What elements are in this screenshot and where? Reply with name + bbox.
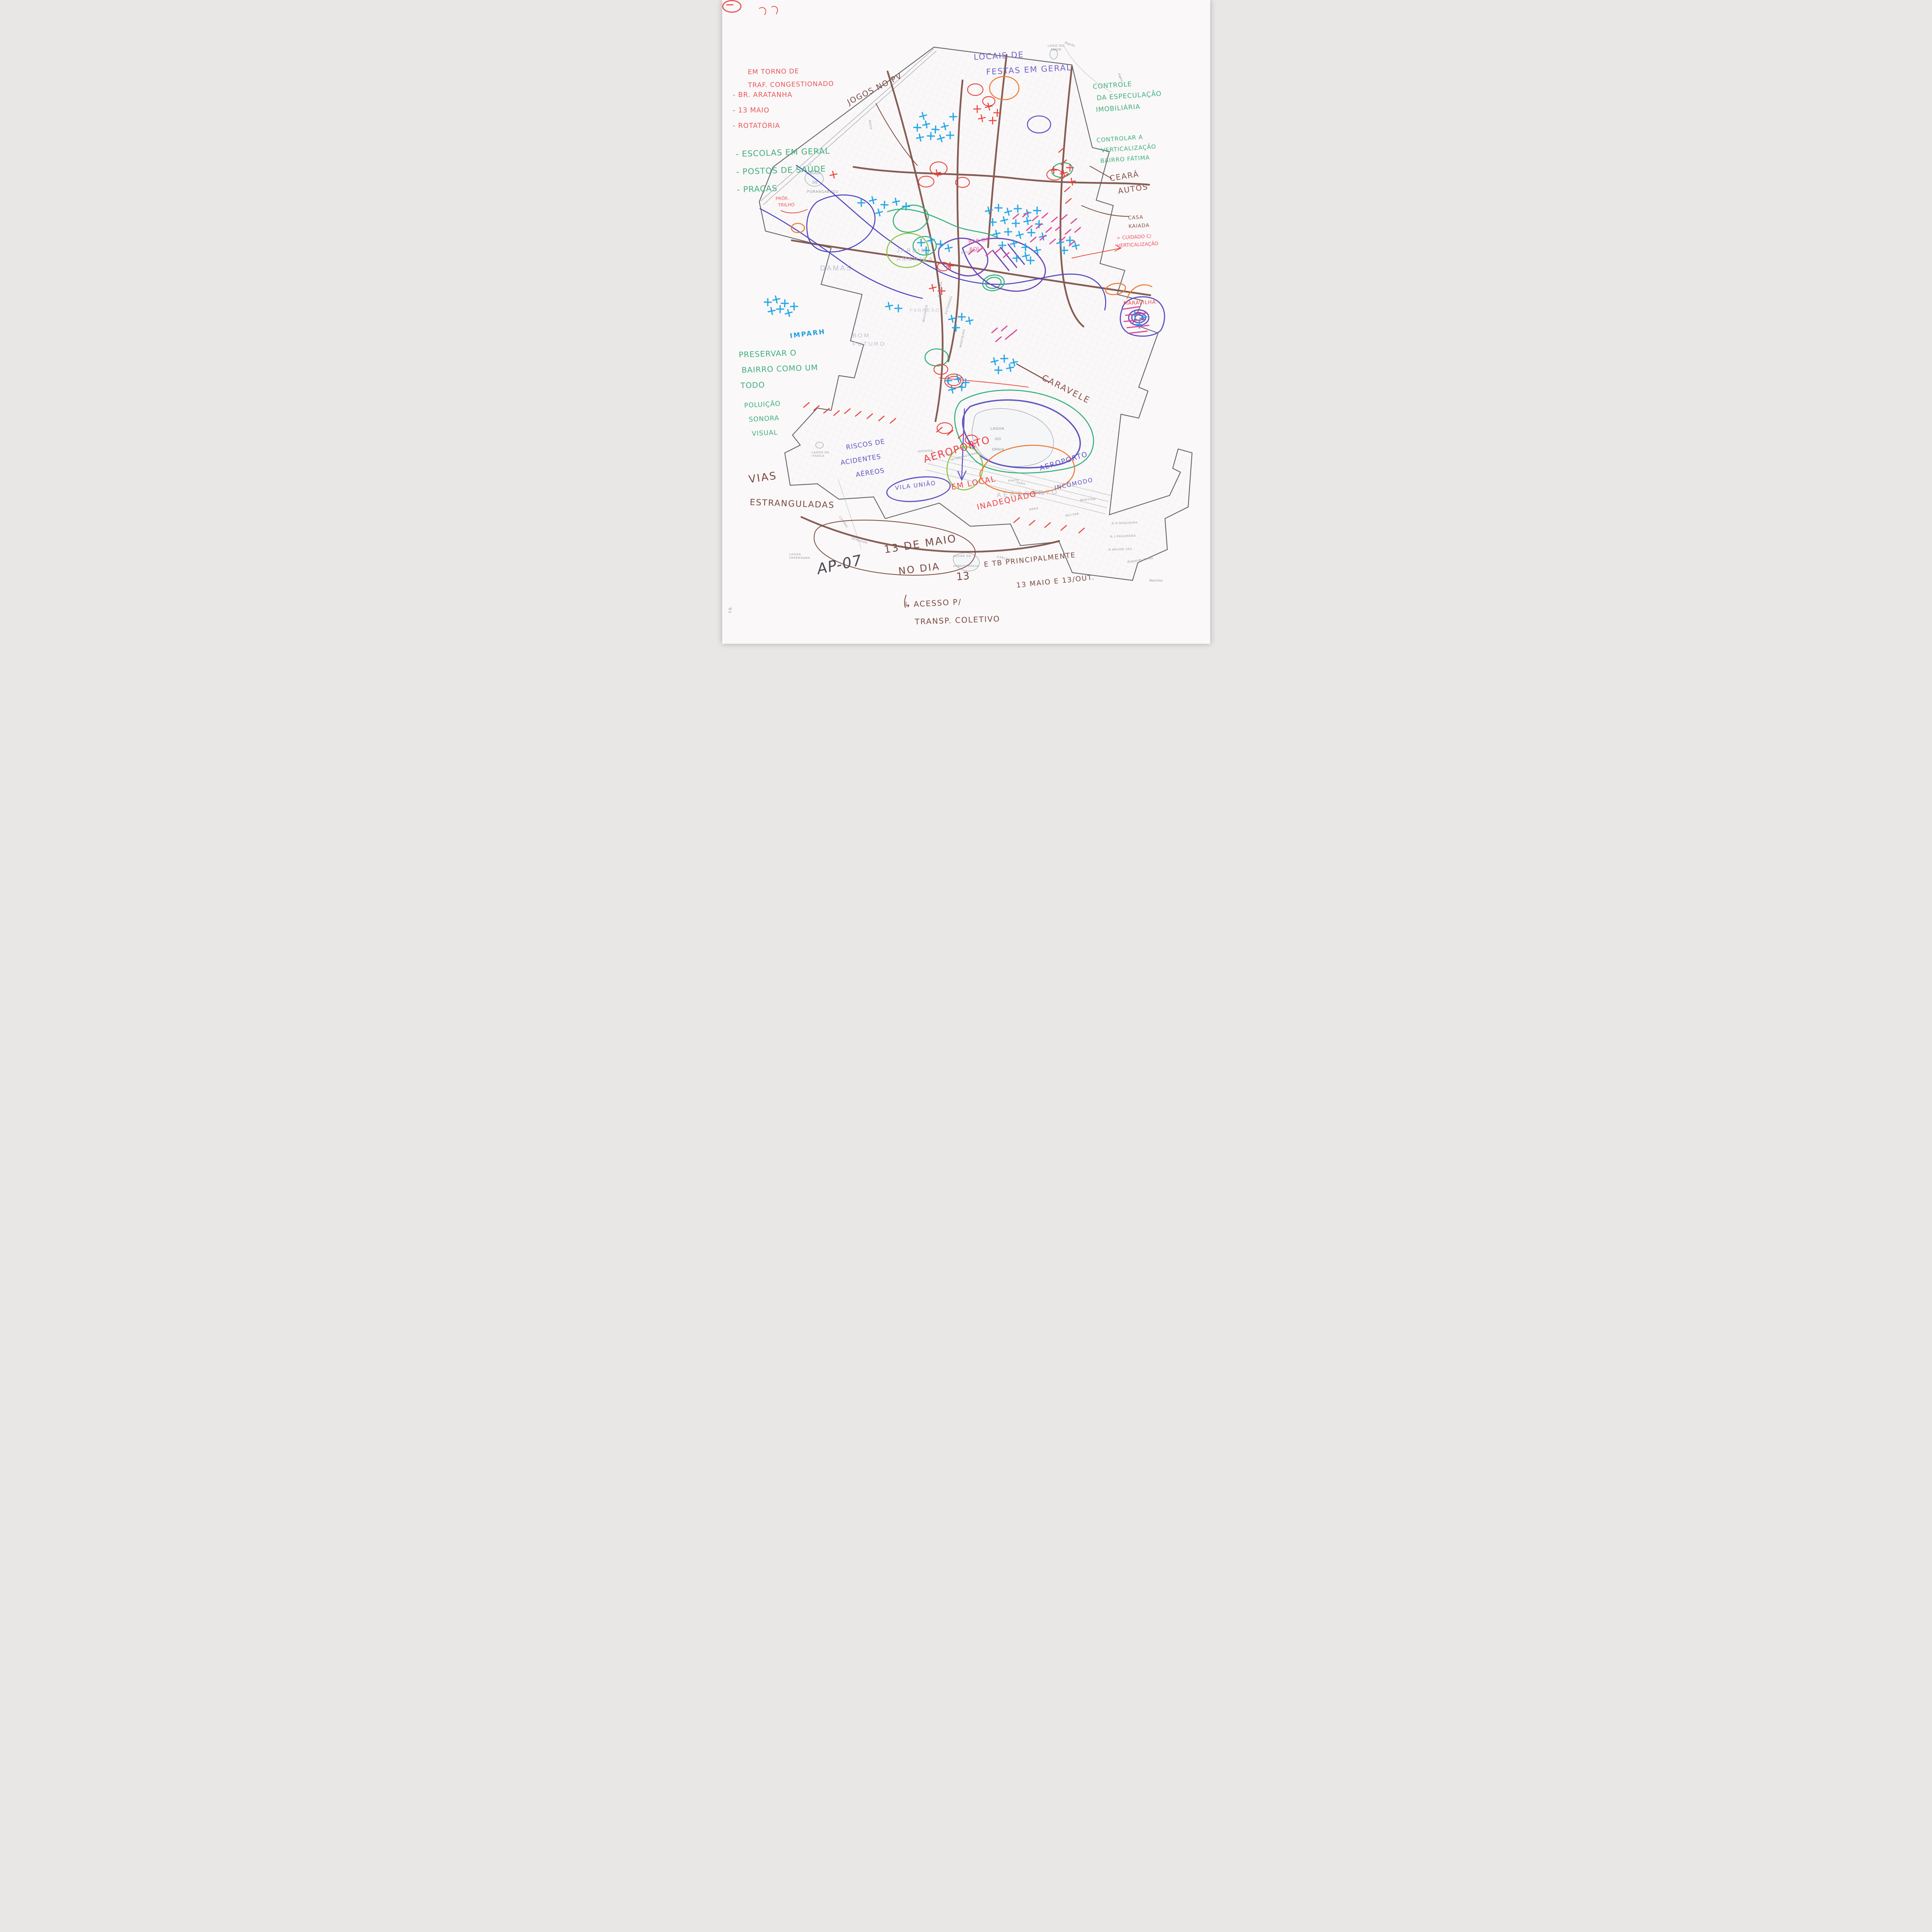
annotation-preservar-bairro: PRESERVAR O BAIRRO COMO UM TODO [738, 344, 819, 393]
label-damas: DAMAS [820, 264, 853, 273]
annotation-poluicao: POLUIÇÃO SONORA VISUAL [744, 397, 782, 442]
corner-mark: F.B. [728, 606, 734, 613]
label-bom-futuro: BOMFUTURO [853, 332, 886, 349]
label-martinho: Martinho [1150, 579, 1163, 583]
annotation-prox-trilho: PRÓX. TRILHO [776, 195, 795, 209]
label-acude-subsistencia: AÇUDE DASUBSISTÊNCIA [953, 551, 979, 571]
annotation-equipamentos: - ESCOLAS EM GERAL - POSTOS DE SAÚDE - P… [735, 142, 832, 198]
label-lagoa-do-opaia: LAGOADOOPAIA [991, 423, 1005, 455]
annotation-congested-traffic-items: - BR. ARATANHA - 13 MAIO - ROTATÓRIA [733, 87, 793, 134]
annotation-controlar-verticalizacao: CONTROLAR A VERTICALIZAÇÃO BAIRRO FÁTIMA [1096, 131, 1157, 166]
annotation-locais-de-festas: LOCAIS DE FESTAS EM GERAL [973, 44, 1072, 80]
scanned-map-page: LAGO DOAMOR Riacho Pajeú LAGOADEPORANGAB… [722, 0, 1210, 644]
annotation-maravilha: MARAVILHA [1123, 299, 1156, 307]
annotation-riscos-aereos: RISCOS DE ACIDENTES AÉREOS [837, 435, 891, 485]
annotation-controle-especulacao: CONTROLE DA ESPECULAÇÃO IMOBILIÁRIA [1092, 77, 1163, 116]
arrow-down-right-icon: ↳ [904, 600, 912, 609]
label-lagoa-itaoca: LAGOA DAITAOCA [812, 451, 830, 457]
annotation-bar-do-bola: BAR DO BOLA [968, 236, 992, 254]
label-jardim-america: JARDIMAMÉRICA [897, 247, 934, 264]
annotation-ceara-autos: CEARÁ AUTOS [1109, 166, 1149, 199]
arrow-right-icon: ➢ [1116, 235, 1121, 241]
annotation-cuidado-verticalizacao: ➢ CUIDADO C/ VERTICALIZAÇÃO [1116, 232, 1158, 250]
annotation-casa-kaiada: CASA KAIADA [1128, 213, 1150, 231]
annotation-numero-13: 13 [956, 568, 970, 585]
label-lagoa-taperoaba: LAGOATAPEROABA [789, 553, 810, 560]
